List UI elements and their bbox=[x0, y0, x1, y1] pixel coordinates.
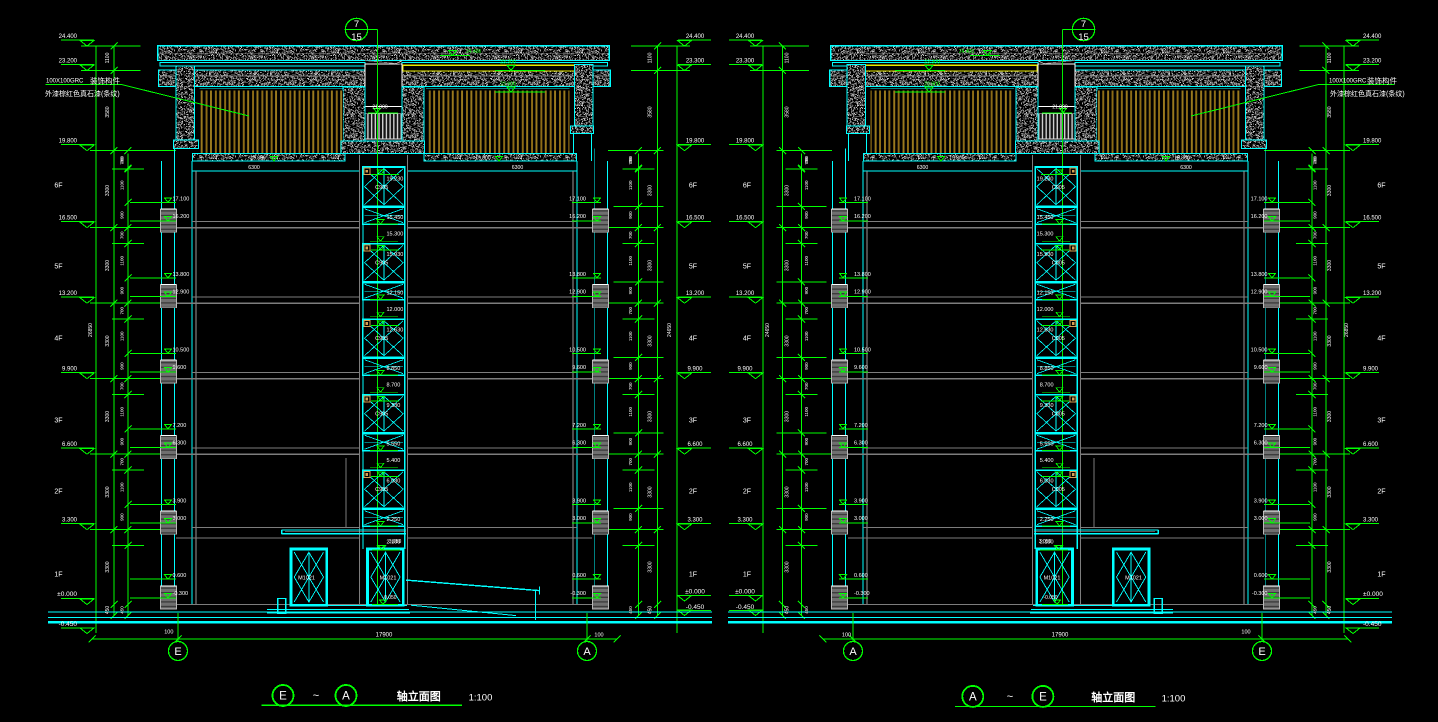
svg-text:3580: 3580 bbox=[105, 106, 111, 117]
svg-text:M1021: M1021 bbox=[298, 576, 315, 582]
svg-text:-0.300: -0.300 bbox=[1252, 591, 1268, 597]
svg-text:3.050: 3.050 bbox=[1039, 539, 1052, 545]
svg-text:3580: 3580 bbox=[1327, 106, 1333, 117]
svg-text:C905: C905 bbox=[1052, 412, 1065, 418]
svg-text:5.400: 5.400 bbox=[387, 458, 401, 464]
svg-text:17.100: 17.100 bbox=[569, 196, 586, 202]
svg-text:1100: 1100 bbox=[120, 255, 125, 265]
svg-text:1100: 1100 bbox=[628, 406, 633, 416]
svg-text:E: E bbox=[1039, 691, 1047, 703]
svg-text:17900: 17900 bbox=[1052, 633, 1069, 639]
svg-text:450: 450 bbox=[105, 606, 111, 615]
svg-text:700: 700 bbox=[1313, 306, 1318, 314]
svg-text:1100: 1100 bbox=[785, 52, 791, 63]
svg-text:13.200: 13.200 bbox=[59, 291, 78, 297]
svg-text:8.850: 8.850 bbox=[1040, 366, 1054, 372]
svg-text:450: 450 bbox=[1327, 606, 1333, 615]
svg-text:3300: 3300 bbox=[785, 561, 791, 572]
svg-text:M1021: M1021 bbox=[1125, 576, 1142, 582]
svg-text:3300: 3300 bbox=[648, 185, 654, 196]
svg-text:23.200: 23.200 bbox=[1363, 58, 1382, 64]
svg-text:6.030: 6.030 bbox=[387, 479, 401, 485]
svg-text:700: 700 bbox=[628, 231, 633, 239]
svg-text:2.250: 2.250 bbox=[1040, 517, 1054, 523]
svg-text:1100: 1100 bbox=[1313, 331, 1318, 341]
svg-text:轴立面图: 轴立面图 bbox=[1091, 690, 1135, 704]
svg-text:16.500: 16.500 bbox=[736, 216, 755, 222]
svg-text:C905: C905 bbox=[1052, 487, 1065, 493]
svg-text:6F: 6F bbox=[743, 183, 751, 190]
svg-text:4F: 4F bbox=[1377, 336, 1385, 343]
svg-text:-0.450: -0.450 bbox=[736, 604, 755, 611]
svg-text:1100: 1100 bbox=[804, 331, 809, 341]
svg-text:12.900: 12.900 bbox=[569, 290, 586, 296]
svg-text:-0.450: -0.450 bbox=[59, 621, 78, 628]
svg-text:1100: 1100 bbox=[628, 255, 633, 265]
svg-text:3300: 3300 bbox=[1327, 411, 1333, 422]
svg-text:1100: 1100 bbox=[628, 180, 633, 190]
svg-text:1F: 1F bbox=[689, 572, 697, 579]
svg-text:19.800: 19.800 bbox=[949, 156, 965, 162]
svg-text:6300: 6300 bbox=[248, 165, 260, 171]
svg-text:700: 700 bbox=[628, 457, 633, 465]
svg-text:24.400: 24.400 bbox=[959, 49, 975, 55]
svg-text:9.900: 9.900 bbox=[737, 367, 753, 373]
svg-text:3300: 3300 bbox=[105, 486, 111, 497]
svg-text:2F: 2F bbox=[743, 489, 751, 496]
svg-text:15: 15 bbox=[351, 32, 362, 43]
svg-text:900: 900 bbox=[804, 513, 809, 521]
svg-text:700: 700 bbox=[628, 306, 633, 314]
svg-text:700: 700 bbox=[628, 155, 633, 163]
svg-text:轴立面图: 轴立面图 bbox=[397, 689, 441, 703]
svg-text:9.900: 9.900 bbox=[62, 367, 78, 373]
svg-text:±0.000: ±0.000 bbox=[685, 589, 705, 596]
svg-text:3580: 3580 bbox=[785, 106, 791, 117]
svg-text:22.900: 22.900 bbox=[500, 82, 516, 88]
svg-text:1100: 1100 bbox=[120, 180, 125, 190]
svg-text:1100: 1100 bbox=[105, 52, 111, 63]
svg-text:9.900: 9.900 bbox=[687, 367, 703, 373]
svg-text:3.900: 3.900 bbox=[854, 498, 868, 504]
svg-text:5F: 5F bbox=[1377, 264, 1385, 271]
svg-text:5.550: 5.550 bbox=[1040, 442, 1054, 448]
svg-text:13.200: 13.200 bbox=[686, 291, 705, 297]
svg-text:5F: 5F bbox=[689, 264, 697, 271]
svg-text:15.930: 15.930 bbox=[1037, 252, 1054, 258]
svg-text:3300: 3300 bbox=[105, 185, 111, 196]
svg-text:16.500: 16.500 bbox=[59, 216, 78, 222]
svg-text:21.000: 21.000 bbox=[1052, 105, 1068, 111]
svg-text:-0.300: -0.300 bbox=[173, 591, 189, 597]
svg-text:7.200: 7.200 bbox=[572, 423, 586, 429]
svg-text:±0.000: ±0.000 bbox=[1363, 591, 1383, 598]
svg-text:3.300: 3.300 bbox=[62, 518, 78, 524]
svg-text:3.300: 3.300 bbox=[1363, 518, 1379, 524]
svg-text:1100: 1100 bbox=[1313, 180, 1318, 190]
svg-text:4F: 4F bbox=[689, 336, 697, 343]
svg-text:1100: 1100 bbox=[1313, 406, 1318, 416]
svg-text:900: 900 bbox=[804, 286, 809, 294]
svg-text:3.000: 3.000 bbox=[854, 516, 868, 522]
svg-text:6.600: 6.600 bbox=[1363, 442, 1379, 448]
svg-text:7: 7 bbox=[354, 19, 359, 30]
svg-text:900: 900 bbox=[804, 437, 809, 445]
svg-text:700: 700 bbox=[120, 457, 125, 465]
svg-text:3300: 3300 bbox=[648, 411, 654, 422]
svg-text:24.400: 24.400 bbox=[59, 34, 78, 40]
svg-text:9.600: 9.600 bbox=[572, 365, 586, 371]
svg-text:24.400: 24.400 bbox=[686, 34, 705, 40]
svg-text:900: 900 bbox=[1313, 286, 1318, 294]
svg-text:C905: C905 bbox=[375, 336, 388, 342]
svg-text:16.200: 16.200 bbox=[173, 214, 190, 220]
svg-text:A: A bbox=[849, 646, 857, 658]
svg-text:450: 450 bbox=[785, 606, 791, 615]
svg-text:C905: C905 bbox=[1052, 185, 1065, 191]
svg-text:外漆棕红色真石漆(条纹): 外漆棕红色真石漆(条纹) bbox=[1330, 89, 1405, 98]
svg-text:E: E bbox=[174, 646, 181, 658]
svg-text:E: E bbox=[1258, 646, 1265, 658]
svg-text:24.400: 24.400 bbox=[1363, 34, 1382, 40]
svg-text:5F: 5F bbox=[743, 264, 751, 271]
svg-text:3.300: 3.300 bbox=[737, 518, 753, 524]
svg-text:900: 900 bbox=[1313, 211, 1318, 219]
svg-text:16.500: 16.500 bbox=[686, 216, 705, 222]
svg-text:900: 900 bbox=[804, 362, 809, 370]
svg-text:24.400: 24.400 bbox=[736, 34, 755, 40]
svg-text:5.550: 5.550 bbox=[387, 442, 401, 448]
svg-text:900: 900 bbox=[628, 211, 633, 219]
svg-text:0.600: 0.600 bbox=[1254, 573, 1268, 579]
svg-text:900: 900 bbox=[1313, 362, 1318, 370]
svg-text:3300: 3300 bbox=[648, 561, 654, 572]
svg-text:3.000: 3.000 bbox=[1254, 516, 1268, 522]
svg-text:700: 700 bbox=[1313, 231, 1318, 239]
svg-text:6.300: 6.300 bbox=[1254, 441, 1268, 447]
svg-text:700: 700 bbox=[804, 382, 809, 390]
svg-text:3300: 3300 bbox=[105, 335, 111, 346]
svg-text:9.600: 9.600 bbox=[854, 365, 868, 371]
svg-text:7.200: 7.200 bbox=[854, 423, 868, 429]
svg-text:12.000: 12.000 bbox=[1037, 307, 1054, 313]
svg-text:900: 900 bbox=[628, 437, 633, 445]
svg-text:24650: 24650 bbox=[765, 323, 771, 337]
svg-text:0.600: 0.600 bbox=[173, 573, 187, 579]
svg-text:100: 100 bbox=[164, 630, 173, 636]
svg-text:16.200: 16.200 bbox=[854, 214, 871, 220]
svg-text:3.900: 3.900 bbox=[173, 498, 187, 504]
svg-text:26850: 26850 bbox=[1344, 323, 1350, 337]
svg-text:450: 450 bbox=[648, 606, 654, 615]
svg-text:7.200: 7.200 bbox=[173, 423, 187, 429]
svg-text:450: 450 bbox=[120, 606, 125, 614]
svg-text:2.250: 2.250 bbox=[387, 517, 401, 523]
svg-text:3F: 3F bbox=[1377, 418, 1385, 425]
svg-text:3.000: 3.000 bbox=[572, 516, 586, 522]
svg-text:3300: 3300 bbox=[785, 335, 791, 346]
svg-text:1100: 1100 bbox=[1327, 52, 1333, 63]
svg-text:-0.050: -0.050 bbox=[1043, 595, 1057, 601]
svg-text:12.630: 12.630 bbox=[1037, 328, 1054, 334]
svg-text:1100: 1100 bbox=[804, 482, 809, 492]
svg-text:9.600: 9.600 bbox=[1254, 365, 1268, 371]
svg-text:3300: 3300 bbox=[648, 486, 654, 497]
svg-text:900: 900 bbox=[120, 286, 125, 294]
svg-text:3300: 3300 bbox=[105, 411, 111, 422]
svg-text:3300: 3300 bbox=[1327, 486, 1333, 497]
svg-text:700: 700 bbox=[1313, 457, 1318, 465]
svg-text:19.800: 19.800 bbox=[250, 156, 266, 162]
svg-text:2F: 2F bbox=[54, 489, 62, 496]
svg-text:10.500: 10.500 bbox=[569, 347, 586, 353]
svg-text:M1021: M1021 bbox=[1044, 576, 1061, 582]
svg-text:6300: 6300 bbox=[917, 165, 929, 171]
svg-text:10.500: 10.500 bbox=[1251, 347, 1268, 353]
svg-text:3F: 3F bbox=[743, 418, 751, 425]
svg-text:6.600: 6.600 bbox=[62, 442, 78, 448]
svg-text:~: ~ bbox=[313, 690, 319, 702]
svg-text:±0.000: ±0.000 bbox=[57, 591, 77, 598]
svg-text:12.150: 12.150 bbox=[1037, 291, 1054, 297]
svg-text:C905: C905 bbox=[375, 185, 388, 191]
svg-text:13.800: 13.800 bbox=[569, 272, 586, 278]
svg-text:17.100: 17.100 bbox=[854, 196, 871, 202]
svg-text:13.800: 13.800 bbox=[854, 272, 871, 278]
svg-text:-0.050: -0.050 bbox=[382, 595, 396, 601]
svg-text:900: 900 bbox=[120, 211, 125, 219]
svg-text:4F: 4F bbox=[743, 336, 751, 343]
svg-text:1100: 1100 bbox=[804, 180, 809, 190]
svg-text:15.450: 15.450 bbox=[387, 215, 404, 221]
svg-text:6.600: 6.600 bbox=[737, 442, 753, 448]
svg-text:9.330: 9.330 bbox=[1040, 403, 1054, 409]
svg-text:1100: 1100 bbox=[120, 406, 125, 416]
svg-text:E: E bbox=[279, 691, 287, 703]
svg-text:100: 100 bbox=[594, 633, 603, 639]
svg-text:6.300: 6.300 bbox=[173, 441, 187, 447]
svg-text:700: 700 bbox=[120, 382, 125, 390]
svg-text:12.630: 12.630 bbox=[387, 328, 404, 334]
svg-text:22.900: 22.900 bbox=[924, 82, 940, 88]
svg-text:26850: 26850 bbox=[88, 323, 94, 337]
svg-text:装饰构件: 装饰构件 bbox=[1367, 76, 1397, 86]
svg-text:9.600: 9.600 bbox=[173, 365, 187, 371]
svg-text:1100: 1100 bbox=[1313, 482, 1318, 492]
svg-text:3F: 3F bbox=[689, 418, 697, 425]
svg-text:700: 700 bbox=[804, 457, 809, 465]
svg-text:15.450: 15.450 bbox=[1037, 215, 1054, 221]
svg-text:900: 900 bbox=[628, 362, 633, 370]
svg-text:1F: 1F bbox=[54, 572, 62, 579]
svg-text:3F: 3F bbox=[54, 418, 62, 425]
svg-text:7: 7 bbox=[1081, 19, 1086, 30]
svg-text:900: 900 bbox=[120, 437, 125, 445]
svg-text:19.800: 19.800 bbox=[1174, 156, 1190, 162]
svg-text:-0.300: -0.300 bbox=[570, 591, 586, 597]
svg-text:6F: 6F bbox=[54, 183, 62, 190]
svg-text:2F: 2F bbox=[689, 489, 697, 496]
svg-text:3.900: 3.900 bbox=[572, 498, 586, 504]
svg-text:16.500: 16.500 bbox=[1363, 216, 1382, 222]
svg-text:13.800: 13.800 bbox=[173, 272, 190, 278]
svg-text:12.000: 12.000 bbox=[387, 307, 404, 313]
svg-text:6.300: 6.300 bbox=[854, 441, 868, 447]
svg-text:5.400: 5.400 bbox=[1040, 458, 1054, 464]
svg-text:10.500: 10.500 bbox=[854, 347, 871, 353]
svg-text:8.850: 8.850 bbox=[387, 366, 401, 372]
svg-text:8.700: 8.700 bbox=[1040, 383, 1054, 389]
svg-text:23.200: 23.200 bbox=[59, 58, 78, 64]
svg-text:10.500: 10.500 bbox=[173, 347, 190, 353]
svg-text:23.300: 23.300 bbox=[736, 58, 755, 64]
svg-text:19.800: 19.800 bbox=[1363, 139, 1382, 145]
svg-text:M1021: M1021 bbox=[380, 576, 397, 582]
svg-text:12.150: 12.150 bbox=[387, 291, 404, 297]
svg-text:450: 450 bbox=[1313, 606, 1318, 614]
svg-text:3300: 3300 bbox=[648, 335, 654, 346]
svg-text:12.900: 12.900 bbox=[173, 290, 190, 296]
svg-text:24.400: 24.400 bbox=[466, 49, 482, 55]
svg-text:6.300: 6.300 bbox=[572, 441, 586, 447]
svg-text:900: 900 bbox=[120, 362, 125, 370]
svg-text:13.200: 13.200 bbox=[736, 291, 755, 297]
svg-text:6.030: 6.030 bbox=[1040, 479, 1054, 485]
svg-text:450: 450 bbox=[804, 606, 809, 614]
svg-text:4F: 4F bbox=[54, 336, 62, 343]
svg-text:3300: 3300 bbox=[648, 260, 654, 271]
svg-text:700: 700 bbox=[628, 382, 633, 390]
svg-text:19.230: 19.230 bbox=[1037, 177, 1054, 183]
svg-text:700: 700 bbox=[120, 155, 125, 163]
svg-text:12.900: 12.900 bbox=[1251, 290, 1268, 296]
svg-text:23.300: 23.300 bbox=[500, 60, 516, 66]
svg-text:1100: 1100 bbox=[648, 52, 654, 63]
svg-text:外漆棕红色真石漆(条纹): 外漆棕红色真石漆(条纹) bbox=[45, 89, 120, 98]
svg-text:9.330: 9.330 bbox=[387, 403, 401, 409]
svg-text:1100: 1100 bbox=[120, 482, 125, 492]
svg-text:3300: 3300 bbox=[785, 486, 791, 497]
svg-text:2F: 2F bbox=[1377, 489, 1385, 496]
svg-text:7.200: 7.200 bbox=[1254, 423, 1268, 429]
svg-text:3.000: 3.000 bbox=[173, 516, 187, 522]
svg-text:19.800: 19.800 bbox=[475, 156, 491, 162]
svg-text:6300: 6300 bbox=[512, 165, 524, 171]
svg-text:A: A bbox=[969, 691, 977, 703]
svg-text:16.200: 16.200 bbox=[1251, 214, 1268, 220]
svg-text:700: 700 bbox=[804, 155, 809, 163]
svg-text:1F: 1F bbox=[743, 572, 751, 579]
svg-text:3580: 3580 bbox=[648, 106, 654, 117]
svg-text:C905: C905 bbox=[1052, 336, 1065, 342]
svg-text:~: ~ bbox=[1007, 691, 1013, 703]
svg-text:6300: 6300 bbox=[1180, 165, 1192, 171]
svg-text:12.900: 12.900 bbox=[854, 290, 871, 296]
svg-text:17.100: 17.100 bbox=[173, 196, 190, 202]
svg-text:装饰构件: 装饰构件 bbox=[90, 76, 120, 86]
svg-text:15: 15 bbox=[1078, 32, 1089, 43]
svg-text:15.300: 15.300 bbox=[387, 232, 404, 238]
svg-text:700: 700 bbox=[1313, 382, 1318, 390]
svg-text:3300: 3300 bbox=[105, 260, 111, 271]
svg-text:17900: 17900 bbox=[376, 633, 393, 639]
svg-text:1F: 1F bbox=[1377, 572, 1385, 579]
svg-text:100X100GRC: 100X100GRC bbox=[46, 79, 84, 85]
svg-text:100: 100 bbox=[842, 633, 851, 639]
svg-text:700: 700 bbox=[120, 306, 125, 314]
svg-text:13.200: 13.200 bbox=[1363, 291, 1382, 297]
svg-text:3300: 3300 bbox=[785, 411, 791, 422]
svg-text:17.100: 17.100 bbox=[1251, 196, 1268, 202]
svg-text:3.300: 3.300 bbox=[687, 518, 703, 524]
svg-text:6F: 6F bbox=[1377, 183, 1385, 190]
svg-text:3300: 3300 bbox=[1327, 561, 1333, 572]
svg-text:13.800: 13.800 bbox=[1251, 272, 1268, 278]
svg-text:16.200: 16.200 bbox=[569, 214, 586, 220]
svg-text:450: 450 bbox=[628, 606, 633, 614]
svg-text:3300: 3300 bbox=[785, 185, 791, 196]
svg-text:-0.450: -0.450 bbox=[686, 604, 705, 611]
svg-text:3300: 3300 bbox=[785, 260, 791, 271]
svg-text:9.900: 9.900 bbox=[1363, 367, 1379, 373]
svg-text:900: 900 bbox=[1313, 513, 1318, 521]
svg-text:900: 900 bbox=[120, 513, 125, 521]
svg-text:900: 900 bbox=[628, 513, 633, 521]
svg-text:100: 100 bbox=[1241, 630, 1250, 636]
svg-text:-0.450: -0.450 bbox=[1363, 621, 1382, 628]
svg-text:3300: 3300 bbox=[1327, 260, 1333, 271]
svg-text:23.300: 23.300 bbox=[686, 58, 705, 64]
svg-text:C905: C905 bbox=[1052, 261, 1065, 267]
svg-text:900: 900 bbox=[1313, 437, 1318, 445]
svg-text:1100: 1100 bbox=[120, 331, 125, 341]
svg-text:5F: 5F bbox=[54, 264, 62, 271]
svg-text:3.900: 3.900 bbox=[1254, 498, 1268, 504]
svg-text:3.050: 3.050 bbox=[389, 539, 402, 545]
svg-text:19.800: 19.800 bbox=[736, 139, 755, 145]
svg-text:3300: 3300 bbox=[1327, 335, 1333, 346]
svg-text:19.230: 19.230 bbox=[387, 177, 404, 183]
svg-text:23.300: 23.300 bbox=[924, 60, 940, 66]
svg-text:1100: 1100 bbox=[1313, 255, 1318, 265]
svg-text:C905: C905 bbox=[375, 412, 388, 418]
svg-text:-0.300: -0.300 bbox=[854, 591, 870, 597]
svg-text:19.800: 19.800 bbox=[59, 139, 78, 145]
svg-text:700: 700 bbox=[804, 306, 809, 314]
svg-text:±0.000: ±0.000 bbox=[735, 589, 755, 596]
svg-text:15.300: 15.300 bbox=[1037, 232, 1054, 238]
svg-text:1100: 1100 bbox=[628, 482, 633, 492]
svg-text:1:100: 1:100 bbox=[469, 693, 493, 704]
svg-text:900: 900 bbox=[804, 211, 809, 219]
svg-text:A: A bbox=[583, 646, 591, 658]
svg-text:C905: C905 bbox=[375, 261, 388, 267]
svg-text:6F: 6F bbox=[689, 183, 697, 190]
svg-text:24650: 24650 bbox=[667, 323, 673, 337]
svg-text:1100: 1100 bbox=[804, 406, 809, 416]
svg-text:100X100GRC: 100X100GRC bbox=[1329, 79, 1367, 85]
svg-text:21.000: 21.000 bbox=[372, 105, 388, 111]
svg-text:15.930: 15.930 bbox=[387, 252, 404, 258]
svg-text:C905: C905 bbox=[375, 487, 388, 493]
svg-text:1100: 1100 bbox=[804, 255, 809, 265]
svg-text:6.600: 6.600 bbox=[687, 442, 703, 448]
svg-text:1:100: 1:100 bbox=[1162, 694, 1186, 705]
svg-text:8.700: 8.700 bbox=[387, 383, 401, 389]
svg-text:700: 700 bbox=[1313, 155, 1318, 163]
svg-text:3300: 3300 bbox=[1327, 185, 1333, 196]
svg-text:1100: 1100 bbox=[628, 331, 633, 341]
